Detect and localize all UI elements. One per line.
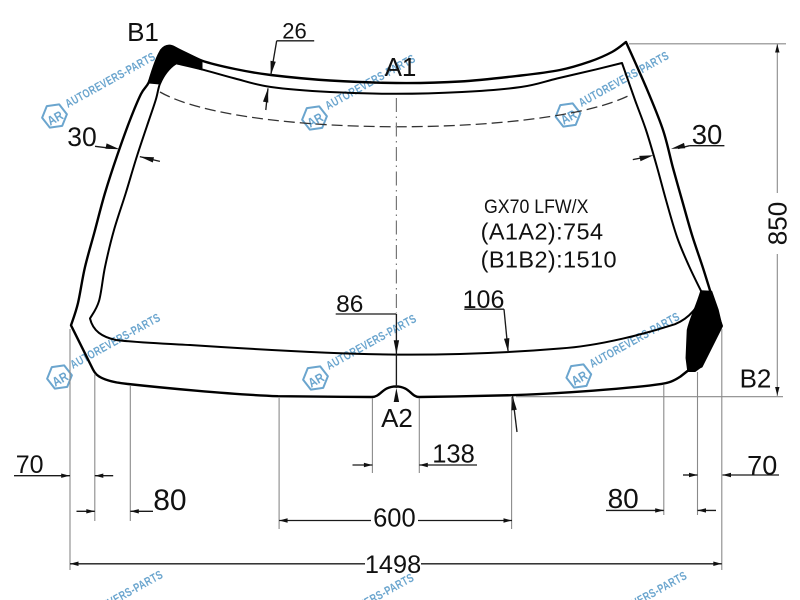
- svg-text:70: 70: [747, 451, 777, 481]
- svg-text:80: 80: [608, 483, 639, 514]
- svg-text:850: 850: [763, 202, 793, 245]
- svg-text:600: 600: [373, 504, 416, 532]
- svg-text:A1: A1: [385, 52, 417, 82]
- svg-text:A2: A2: [381, 403, 413, 433]
- svg-text:(A1A2):754: (A1A2):754: [481, 219, 604, 245]
- svg-text:GX70 LFW/X: GX70 LFW/X: [484, 195, 589, 217]
- svg-text:86: 86: [336, 291, 363, 318]
- svg-text:1498: 1498: [365, 551, 421, 579]
- svg-text:30: 30: [692, 119, 723, 150]
- svg-text:138: 138: [432, 441, 475, 469]
- svg-text:30: 30: [67, 122, 96, 152]
- svg-text:70: 70: [16, 451, 44, 479]
- svg-text:B2: B2: [740, 364, 772, 394]
- svg-text:(B1B2):1510: (B1B2):1510: [481, 247, 617, 273]
- svg-text:106: 106: [463, 286, 505, 314]
- svg-text:B1: B1: [127, 17, 159, 47]
- svg-text:80: 80: [153, 484, 186, 517]
- svg-text:26: 26: [282, 18, 306, 43]
